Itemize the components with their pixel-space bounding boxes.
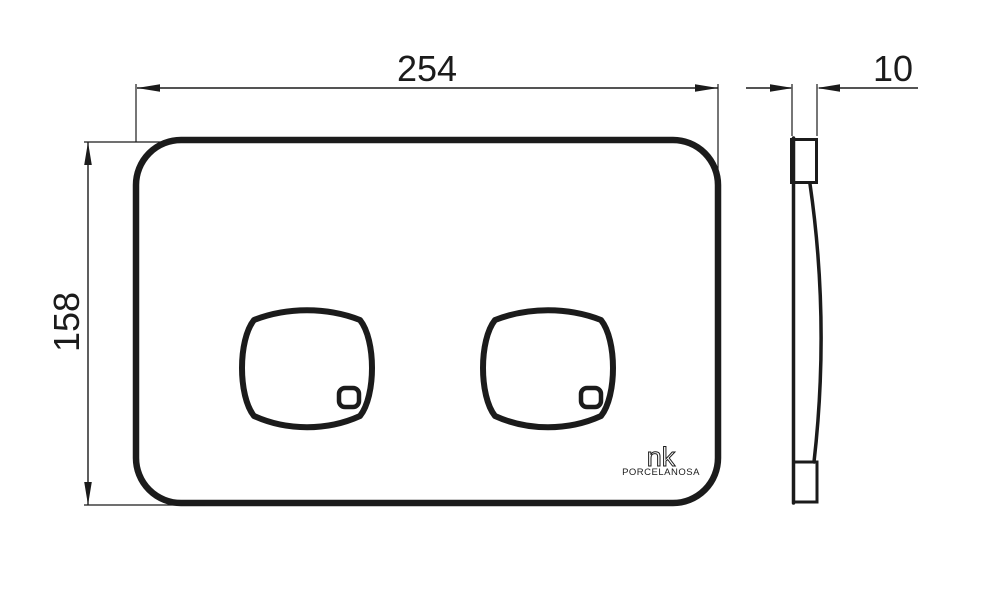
plate-outline [136,140,718,503]
height-dimension: 158 [46,142,205,505]
right-button-indicator-icon [581,388,601,407]
right-flush-button [483,310,613,427]
width-arrow-right-icon [695,84,718,92]
height-arrow-top-icon [84,142,92,165]
height-arrow-bottom-icon [84,482,92,505]
width-dimension: 254 [136,48,718,178]
side-view [792,138,822,503]
side-view-front-face [810,184,821,462]
left-flush-button [242,310,372,427]
thickness-dimension-label: 10 [873,48,913,89]
company-name-text: PORCELANOSA [622,467,700,478]
thickness-arrow-left-icon [770,84,793,92]
technical-drawing-canvas: nk PORCELANOSA 254 [0,0,982,603]
left-button-indicator-icon [339,388,359,407]
front-view [136,140,718,503]
thickness-dimension: 10 [746,48,918,136]
thickness-arrow-right-icon [817,84,840,92]
technical-drawing-page: nk PORCELANOSA 254 [0,0,982,603]
width-dimension-label: 254 [397,48,457,89]
brand-logo: nk PORCELANOSA [622,442,700,478]
width-arrow-left-icon [137,84,160,92]
height-dimension-label: 158 [46,292,87,352]
side-view-bottom-clip [794,462,818,502]
